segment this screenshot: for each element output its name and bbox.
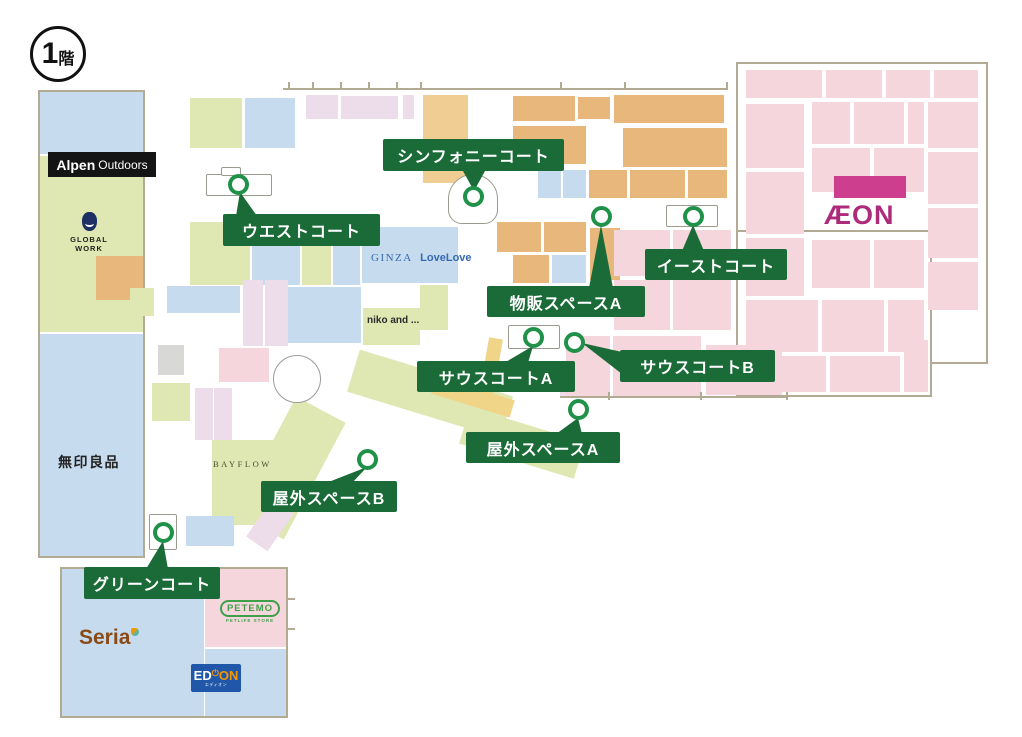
- callout-pointer-south-court-b: [582, 343, 622, 374]
- callout-layer: シンフォニーコートウエストコートイーストコート物販スペースAサウスコートAサウス…: [0, 0, 1022, 737]
- location-pin-south-court-b[interactable]: [564, 332, 585, 353]
- location-pin-east-court[interactable]: [683, 206, 704, 227]
- callout-retail-space-a[interactable]: 物販スペースA: [487, 286, 645, 317]
- callout-south-court-b[interactable]: サウスコートB: [620, 350, 775, 382]
- callout-south-court-a[interactable]: サウスコートA: [417, 361, 575, 392]
- callout-pointer-green-court: [146, 541, 168, 569]
- location-pin-outdoor-space-a[interactable]: [568, 399, 589, 420]
- floor-map-canvas: 1 階 Alpen Outdoors GLOBAL WORK 無印良品 GINZ…: [0, 0, 1022, 737]
- location-pin-west-court[interactable]: [228, 174, 249, 195]
- location-pin-retail-space-a[interactable]: [591, 206, 612, 227]
- callout-pointer-retail-space-a: [589, 225, 613, 288]
- callout-green-court[interactable]: グリーンコート: [84, 567, 220, 599]
- callout-pointer-west-court: [236, 192, 257, 216]
- location-pin-symphony-court[interactable]: [463, 186, 484, 207]
- callout-west-court[interactable]: ウエストコート: [223, 214, 380, 246]
- callout-symphony-court[interactable]: シンフォニーコート: [383, 139, 564, 171]
- callout-east-court[interactable]: イーストコート: [645, 249, 787, 280]
- callout-outdoor-space-a[interactable]: 屋外スペースA: [466, 432, 620, 463]
- location-pin-green-court[interactable]: [153, 522, 174, 543]
- location-pin-outdoor-space-b[interactable]: [357, 449, 378, 470]
- callout-outdoor-space-b[interactable]: 屋外スペースB: [261, 481, 397, 512]
- callout-pointer-east-court: [682, 225, 704, 251]
- location-pin-south-court-a[interactable]: [523, 327, 544, 348]
